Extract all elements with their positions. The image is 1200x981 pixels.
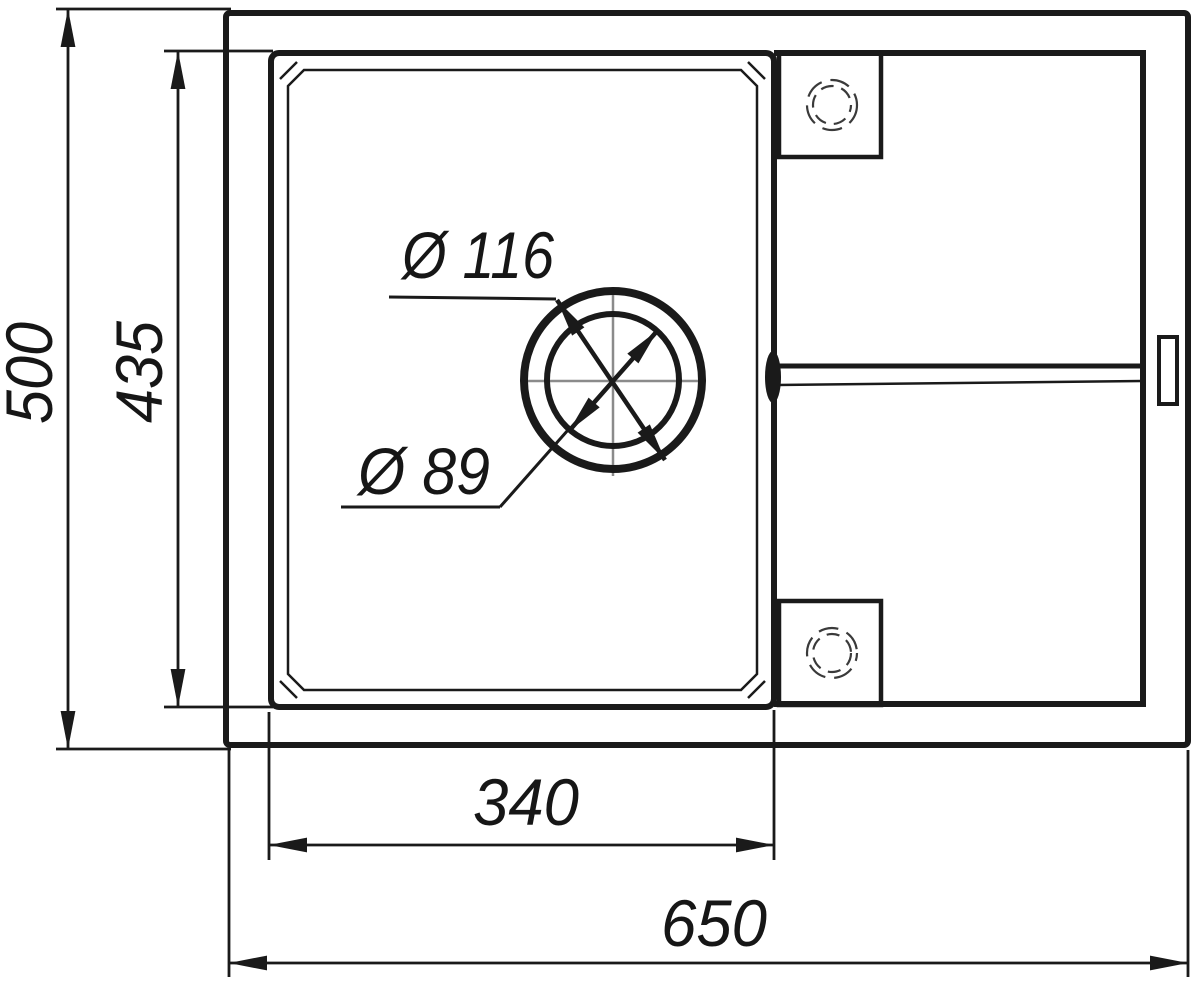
drawing-canvas: 500 435 340 650 Ø 116 Ø 89 (0, 0, 1200, 981)
paper-background (0, 0, 1200, 981)
dim-label-bowl-width: 340 (473, 765, 579, 839)
dim-label-drain-hole: Ø 89 (356, 434, 490, 508)
leader-drain-flange (389, 297, 556, 299)
channel-outlet (765, 351, 781, 403)
dim-label-drain-flange: Ø 116 (400, 218, 554, 292)
dim-label-overall-depth: 500 (0, 322, 66, 424)
sink-technical-drawing: 500 435 340 650 Ø 116 Ø 89 (0, 0, 1200, 981)
dim-label-overall-width: 650 (661, 886, 767, 960)
dim-label-bowl-depth: 435 (102, 321, 176, 423)
